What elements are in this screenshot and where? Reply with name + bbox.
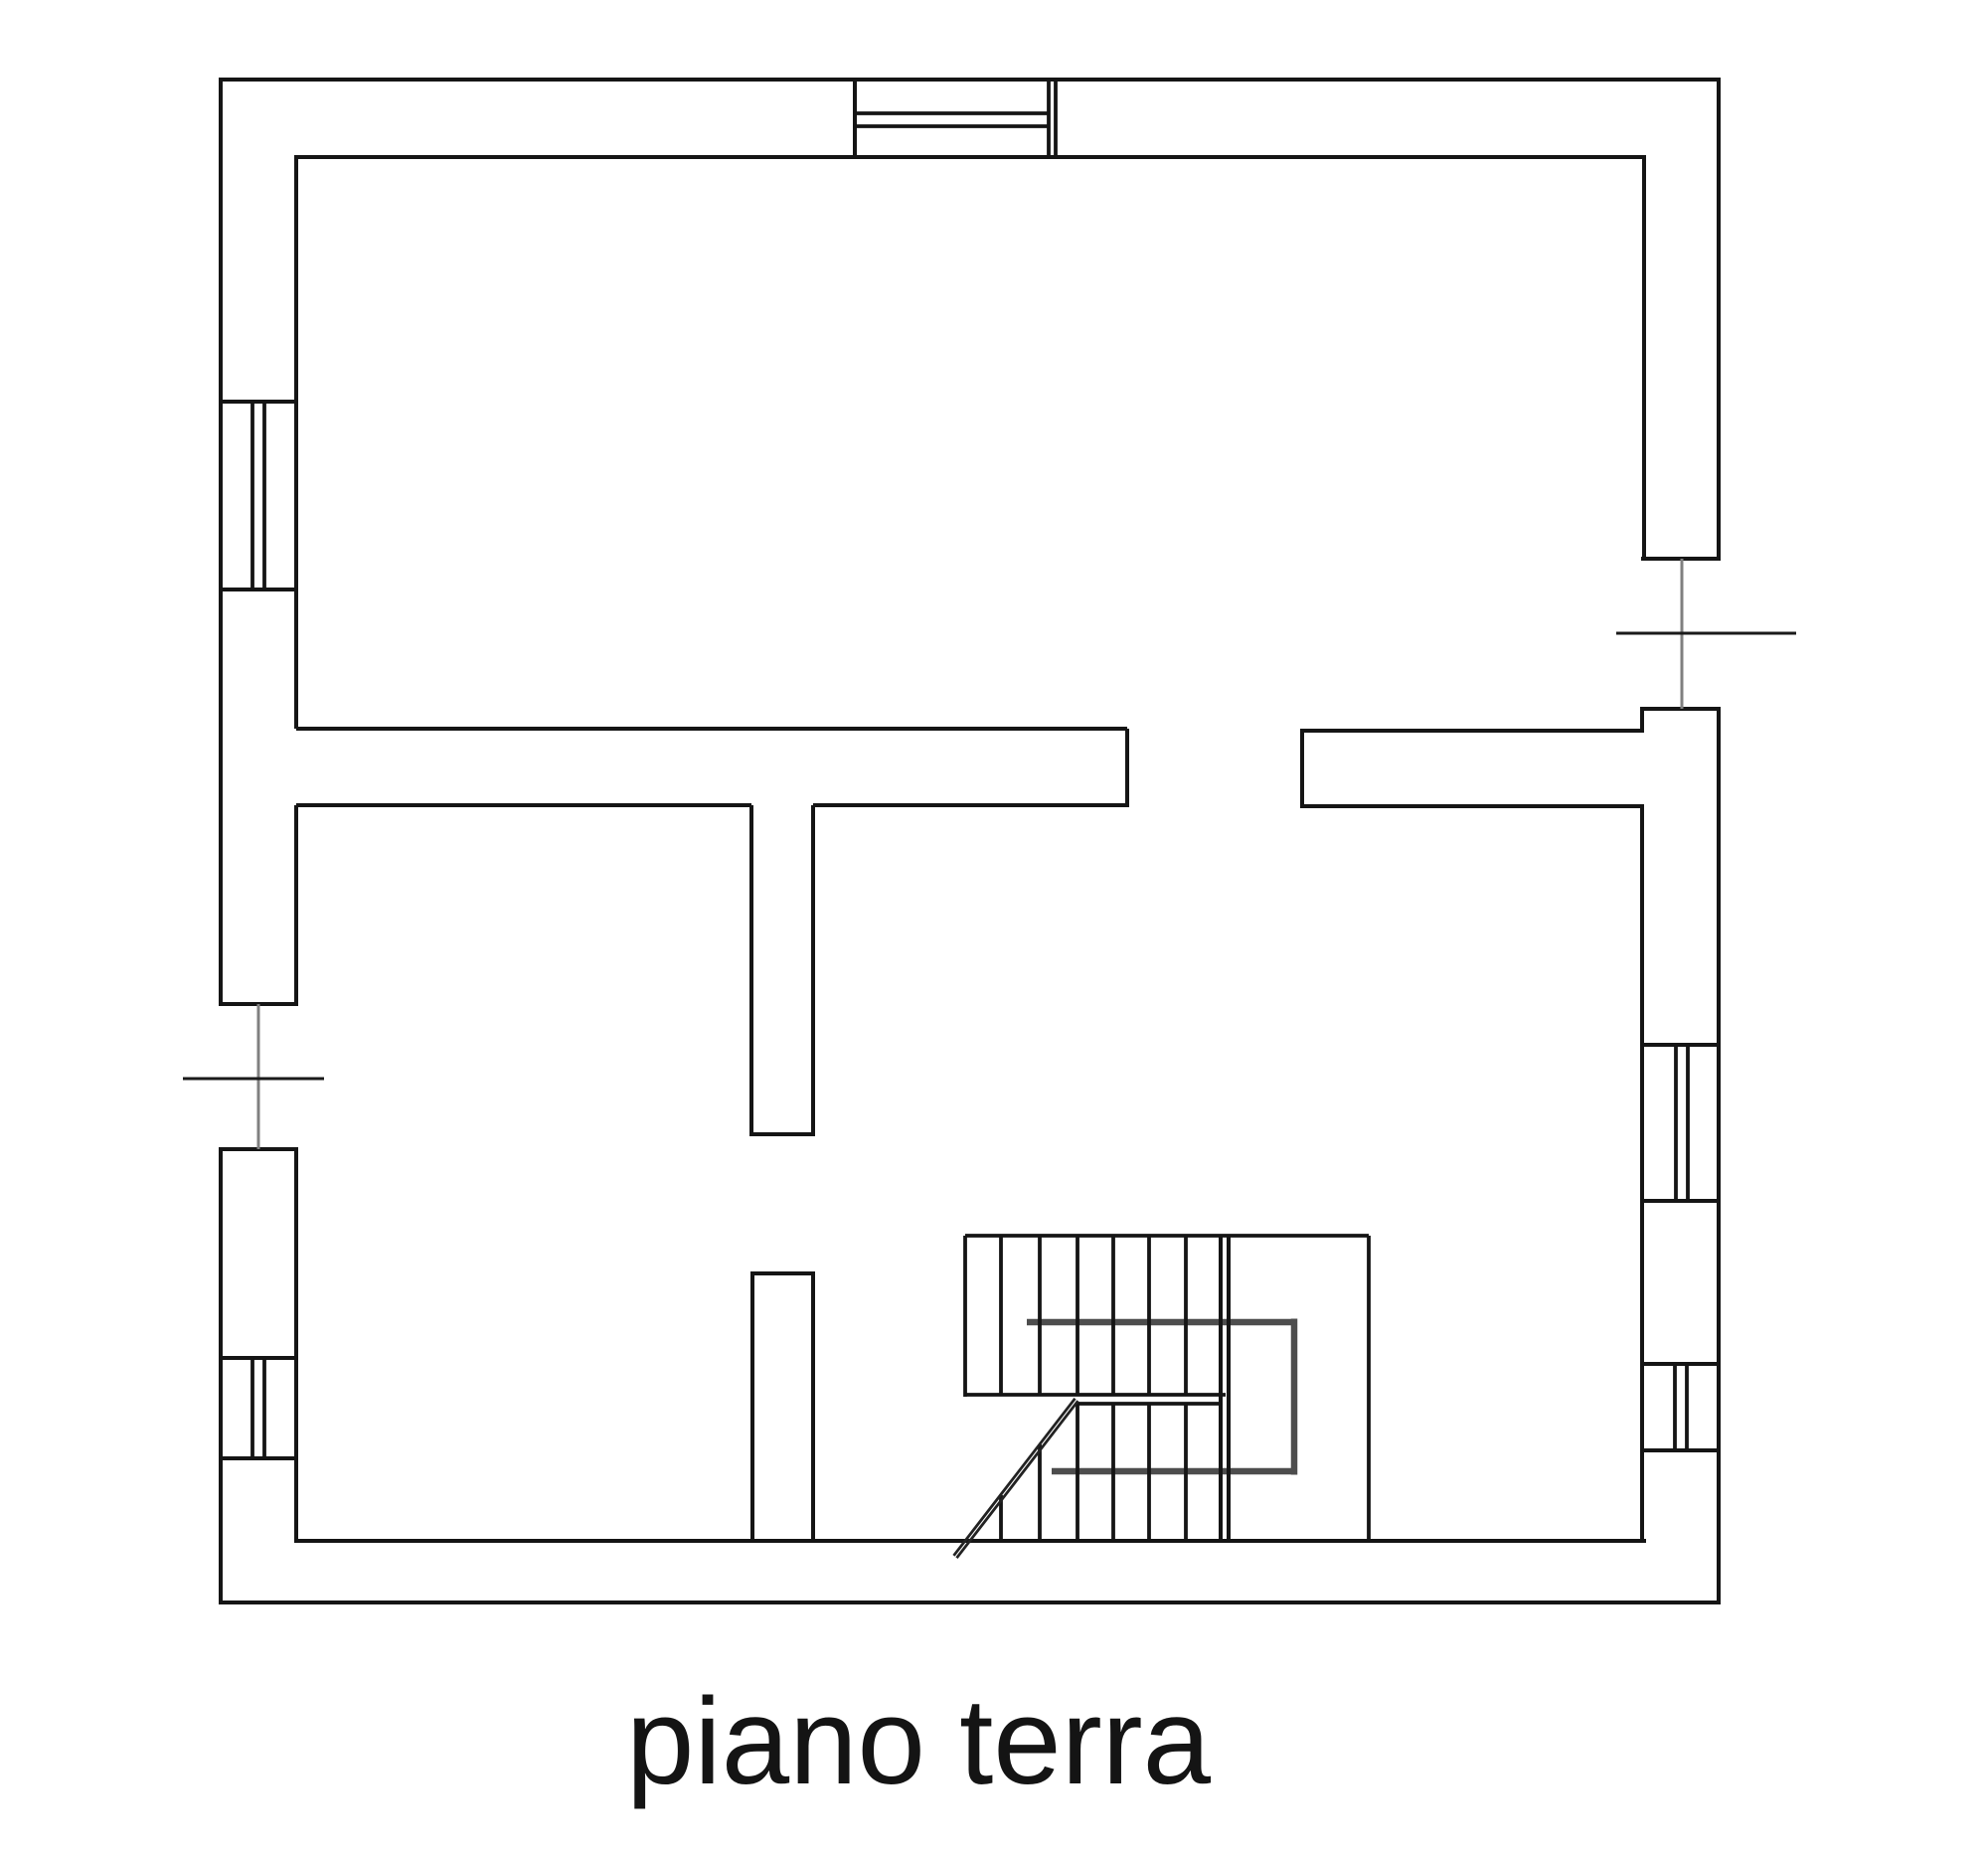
- svg-text:piano terra: piano terra: [626, 1674, 1212, 1810]
